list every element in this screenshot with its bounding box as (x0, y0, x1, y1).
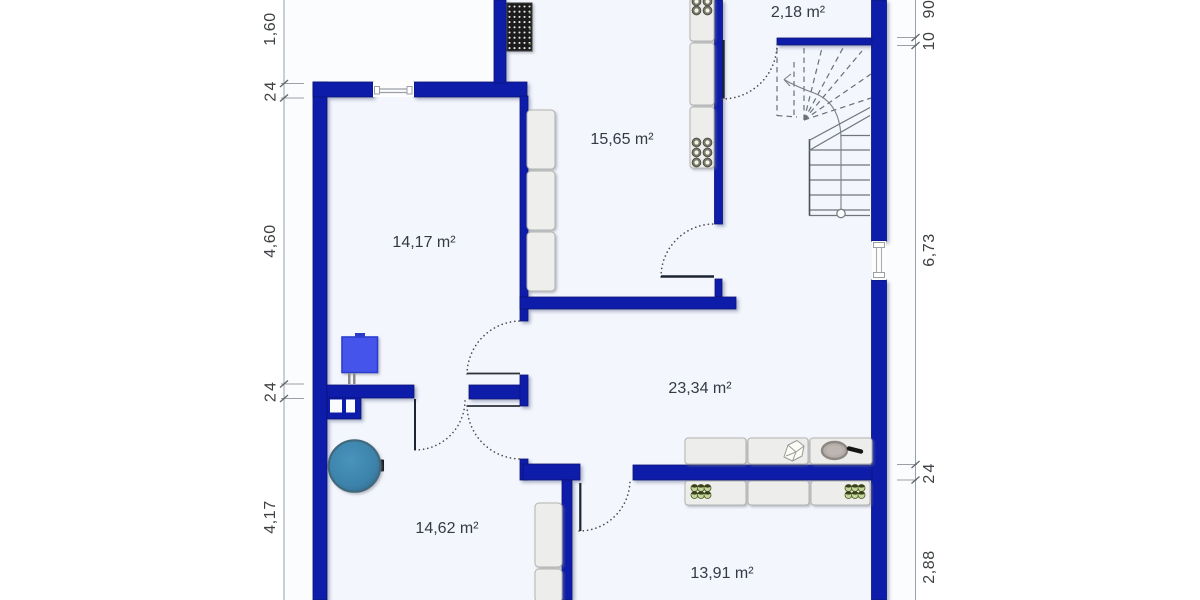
svg-text:1,60: 1,60 (262, 12, 279, 46)
svg-text:14,62 m²: 14,62 m² (415, 520, 479, 537)
svg-text:2,18 m²: 2,18 m² (771, 4, 826, 21)
svg-text:24: 24 (921, 461, 938, 483)
svg-text:4,17: 4,17 (262, 500, 279, 534)
svg-text:90: 90 (921, 0, 938, 19)
svg-text:6,73: 6,73 (921, 233, 938, 267)
svg-text:4,60: 4,60 (262, 224, 279, 258)
svg-text:2,88: 2,88 (921, 550, 938, 584)
svg-text:24: 24 (263, 380, 280, 402)
svg-text:14,17 m²: 14,17 m² (392, 234, 456, 251)
svg-text:15,65 m²: 15,65 m² (590, 131, 654, 148)
svg-text:10: 10 (921, 32, 938, 51)
svg-text:23,34 m²: 23,34 m² (668, 380, 732, 397)
svg-text:13,91 m²: 13,91 m² (690, 565, 754, 582)
svg-text:24: 24 (263, 79, 280, 101)
